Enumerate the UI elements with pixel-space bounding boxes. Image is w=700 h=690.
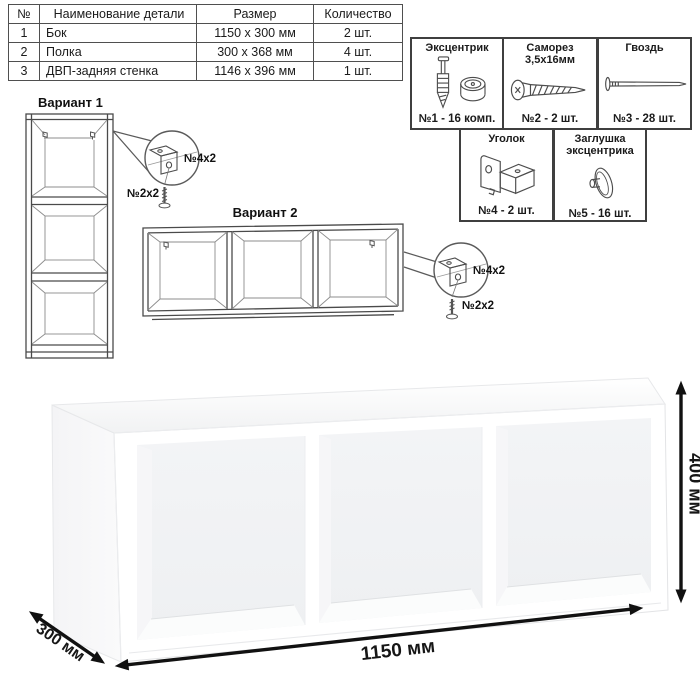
part-size: 1150 x 300 мм: [197, 24, 314, 43]
variant2-title: Вариант 2: [233, 205, 298, 220]
variant2-screw-label: №2х2: [462, 300, 494, 312]
assembly-instruction-sheet: № Наименование детали Размер Количество …: [0, 0, 700, 690]
hardware-title: Гвоздь: [623, 42, 665, 54]
hardware-title: Эксцентрик: [423, 42, 490, 54]
hardware-title: Саморез 3,5х16мм: [504, 42, 596, 67]
col-header-size: Размер: [197, 5, 314, 24]
part-name: ДВП-задняя стенка: [40, 62, 197, 81]
col-header-num: №: [9, 5, 40, 24]
variant1-title: Вариант 1: [38, 95, 103, 110]
hardware-count: №2 - 2 шт.: [522, 113, 578, 125]
variant2-drawing: Вариант 2: [130, 200, 590, 340]
shelf-3d-render: 1150 мм 400 мм 300 мм: [0, 370, 700, 690]
hardware-count: №1 - 16 комп.: [419, 113, 496, 125]
table-row: 2 Полка 300 x 368 мм 4 шт.: [9, 43, 403, 62]
table-row: 3 ДВП-задняя стенка 1146 x 396 мм 1 шт.: [9, 62, 403, 81]
part-qty: 1 шт.: [314, 62, 403, 81]
width-dimension-label: 1150 мм: [360, 636, 436, 665]
height-dimension-label: 400 мм: [685, 453, 700, 515]
variant2-callout: №4х2 №2х2: [404, 243, 505, 319]
col-header-name: Наименование детали: [40, 5, 197, 24]
part-size: 300 x 368 мм: [197, 43, 314, 62]
table-row: 1 Бок 1150 x 300 мм 2 шт.: [9, 24, 403, 43]
variant1-screw-label: №2х2: [127, 188, 159, 200]
part-name: Бок: [40, 24, 197, 43]
part-num: 1: [9, 24, 40, 43]
variant1-callout: №4х2 №2х2: [113, 131, 216, 208]
part-num: 3: [9, 62, 40, 81]
hardware-count: №3 - 28 шт.: [613, 113, 676, 125]
part-name: Полка: [40, 43, 197, 62]
hardware-title: Уголок: [486, 133, 526, 145]
parts-table: № Наименование детали Размер Количество …: [8, 4, 403, 81]
nail-icon: [599, 54, 690, 113]
shelf-body: [52, 378, 668, 662]
hardware-cell-nail: Гвоздь №3 - 28 шт.: [597, 37, 692, 130]
part-qty: 2 шт.: [314, 24, 403, 43]
hardware-cell-eccentric: Эксцентрик №1 - 16 комп.: [410, 37, 504, 130]
eccentric-cam-and-bolt-icon: [412, 54, 502, 113]
callout-screw-icon: [447, 299, 458, 319]
variant1-bracket-label: №4х2: [184, 153, 216, 165]
hardware-cell-screw: Саморез 3,5х16мм №2 - 2 шт.: [502, 37, 598, 130]
corner-bracket-icon: [461, 145, 552, 205]
screw-icon: [504, 67, 596, 113]
part-qty: 4 шт.: [314, 43, 403, 62]
hardware-title: Заглушка эксцентрика: [555, 133, 645, 158]
part-num: 2: [9, 43, 40, 62]
part-size: 1146 x 396 мм: [197, 62, 314, 81]
variant2-bracket-label: №4х2: [473, 265, 505, 277]
col-header-qty: Количество: [314, 5, 403, 24]
parts-table-header-row: № Наименование детали Размер Количество: [9, 5, 403, 24]
